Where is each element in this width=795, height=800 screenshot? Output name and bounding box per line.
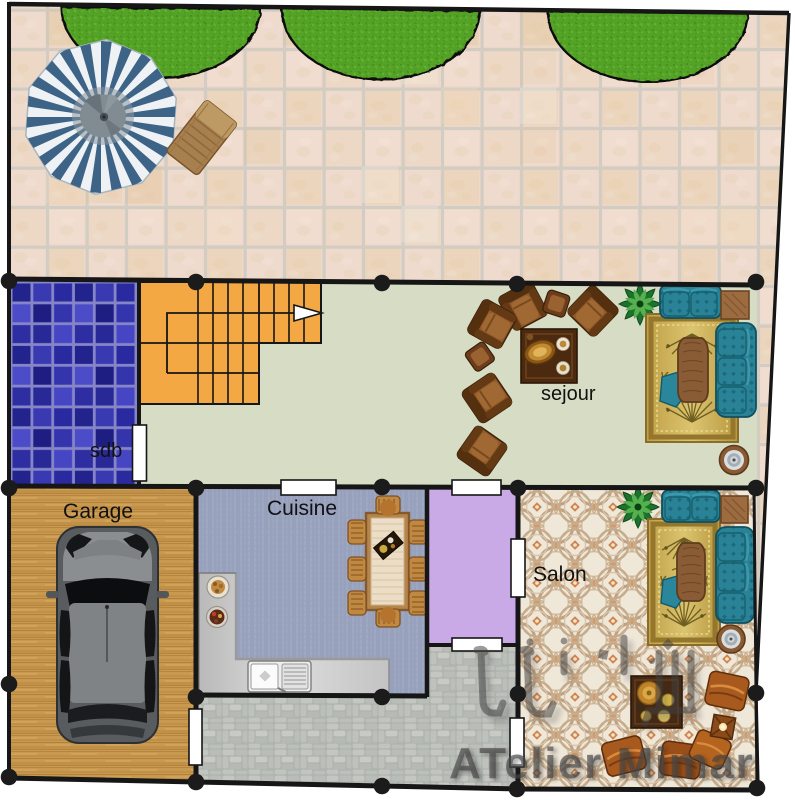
svg-text:Cuisine: Cuisine bbox=[267, 497, 337, 520]
svg-text:Garage: Garage bbox=[63, 500, 133, 523]
svg-text:ATelier Mimar: ATelier Mimar bbox=[449, 739, 754, 788]
svg-text:Salon: Salon bbox=[533, 563, 587, 586]
svg-text:sdb: sdb bbox=[90, 440, 122, 462]
svg-text:sejour: sejour bbox=[541, 383, 596, 405]
